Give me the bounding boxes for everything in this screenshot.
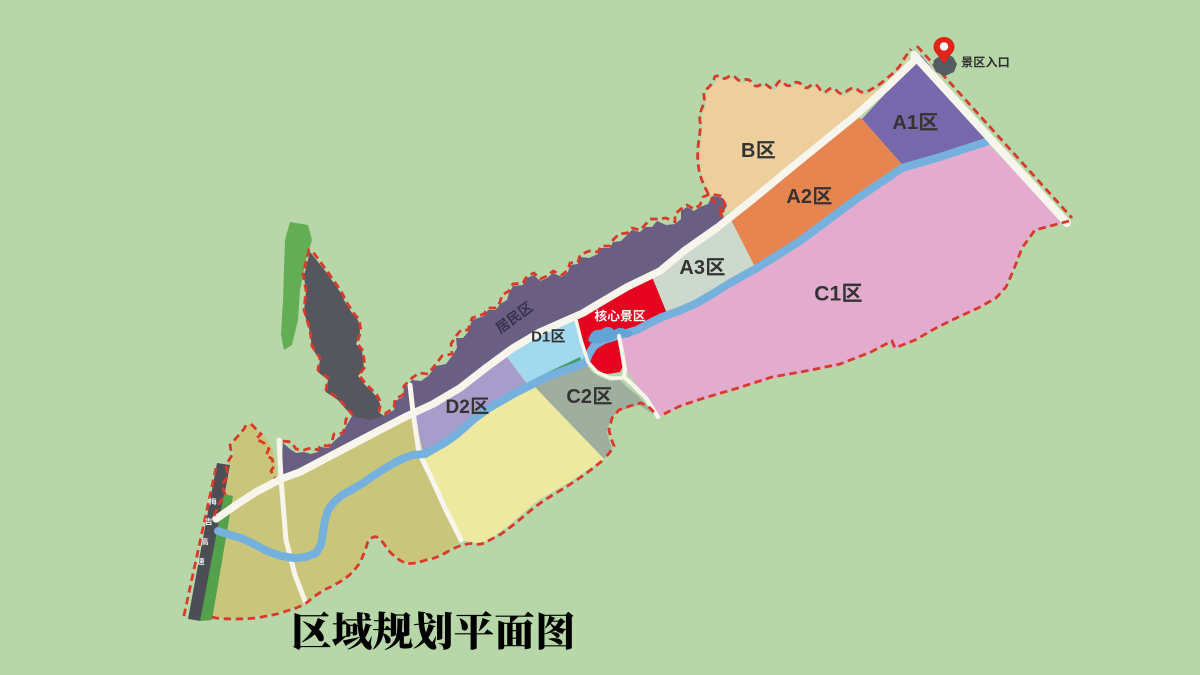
svg-text:D2: D2 [446, 397, 470, 418]
svg-text:A3: A3 [679, 257, 705, 279]
svg-text:D1: D1 [531, 328, 550, 345]
svg-text:A1: A1 [892, 112, 918, 134]
svg-text:C1: C1 [814, 283, 841, 306]
svg-text:C2: C2 [566, 386, 592, 408]
svg-text:A2: A2 [786, 186, 812, 208]
svg-text:B: B [741, 140, 755, 162]
